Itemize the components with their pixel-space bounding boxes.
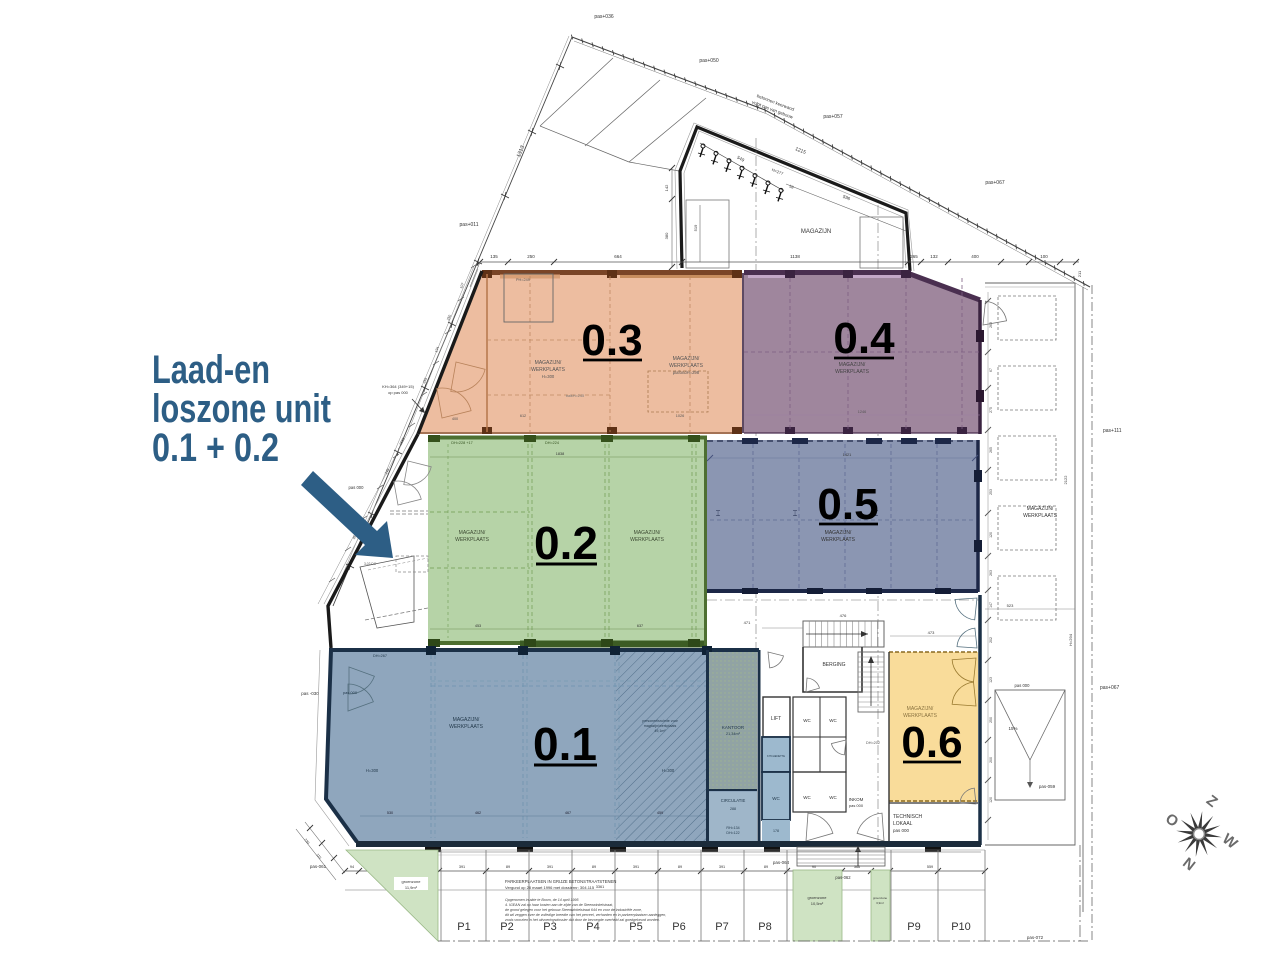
svg-text:211: 211	[1077, 270, 1082, 277]
svg-text:1246: 1246	[858, 410, 866, 414]
svg-text:135: 135	[490, 254, 498, 259]
svg-text:Vergund op 28 maart 1996 met d: Vergund op 28 maart 1996 met dossiernr: …	[505, 885, 595, 890]
svg-text:balkH=245: balkH=245	[566, 394, 584, 398]
svg-text:WERKPLAATS: WERKPLAATS	[630, 537, 664, 543]
svg-text:400: 400	[971, 254, 979, 259]
svg-text:P6: P6	[672, 921, 685, 933]
svg-text:DH=228 +17: DH=228 +17	[451, 441, 473, 445]
svg-text:MAGAZIJN/: MAGAZIJN/	[907, 706, 934, 712]
svg-text:pas 000: pas 000	[849, 803, 864, 808]
svg-text:pas+057: pas+057	[823, 114, 843, 120]
svg-text:11,9m²: 11,9m²	[405, 885, 418, 890]
svg-text:H=294: H=294	[1068, 633, 1073, 646]
svg-text:P3: P3	[543, 921, 556, 933]
svg-text:TECHNISCH: TECHNISCH	[893, 814, 923, 820]
svg-text:pas 000: pas 000	[349, 485, 365, 490]
svg-text:WC: WC	[829, 718, 837, 723]
svg-text:groenzone: groenzone	[402, 879, 422, 884]
svg-text:459: 459	[657, 811, 663, 815]
svg-text:magazijn/werkplaats: magazijn/werkplaats	[644, 724, 677, 728]
svg-text:⌶: ⌶	[793, 509, 798, 518]
svg-text:LOKAAL: LOKAAL	[893, 821, 913, 827]
svg-text:473: 473	[928, 630, 935, 635]
svg-text:pas+050: pas+050	[699, 58, 719, 64]
svg-text:RH=134: RH=134	[726, 826, 739, 830]
svg-text:CIRCULATIE: CIRCULATIE	[721, 798, 746, 803]
svg-text:pas-062: pas-062	[835, 875, 851, 880]
svg-text:89: 89	[506, 865, 510, 869]
svg-text:P8: P8	[758, 921, 771, 933]
svg-text:1138: 1138	[790, 254, 800, 259]
svg-text:265: 265	[910, 254, 918, 259]
svg-text:H=300: H=300	[366, 768, 379, 773]
svg-text:zoals voorzien in het uitvoeri: zoals voorzien in het uitvoeringsdossier…	[504, 918, 660, 922]
svg-text:WC: WC	[772, 796, 780, 801]
svg-text:pas+011: pas+011	[460, 222, 479, 228]
svg-text:3361: 3361	[596, 885, 604, 889]
svg-text:MAGAZIJN/: MAGAZIJN/	[459, 530, 486, 536]
svg-text:89: 89	[764, 865, 768, 869]
svg-text:MAGAZIJN: MAGAZIJN	[801, 229, 831, 235]
svg-text:pas-059: pas-059	[1039, 784, 1056, 789]
svg-text:P4: P4	[586, 921, 599, 933]
svg-text:DH=224: DH=224	[545, 441, 559, 445]
svg-text:0.3: 0.3	[581, 316, 642, 365]
svg-text:groenzone: groenzone	[808, 895, 828, 900]
svg-text:pas -030: pas -030	[301, 691, 319, 696]
svg-text:MAGAZIJN/: MAGAZIJN/	[634, 530, 661, 536]
svg-text:202: 202	[989, 637, 993, 643]
svg-text:2122: 2122	[1063, 475, 1068, 485]
svg-text:MAGAZIJN/: MAGAZIJN/	[453, 717, 480, 723]
svg-text:89: 89	[678, 865, 682, 869]
svg-text:4. IGEAN zal op haar kosten aa: 4. IGEAN zal op haar kosten aan de zijde…	[505, 903, 613, 907]
svg-text:664: 664	[614, 254, 622, 259]
svg-text:453: 453	[475, 624, 481, 628]
svg-text:personeelsruimte voor: personeelsruimte voor	[642, 719, 678, 723]
svg-text:H=300: H=300	[542, 374, 555, 379]
svg-text:WERKPLAATS: WERKPLAATS	[821, 537, 855, 543]
svg-text:KANTOOR: KANTOOR	[722, 725, 745, 730]
svg-text:pas-061: pas-061	[310, 864, 327, 869]
svg-text:10,5m²: 10,5m²	[811, 901, 824, 906]
svg-text:391: 391	[719, 865, 725, 869]
svg-text:132: 132	[930, 254, 938, 259]
svg-text:0.5: 0.5	[817, 480, 878, 529]
svg-text:PARKEERPLAATSEN IN GRIJZE BETO: PARKEERPLAATSEN IN GRIJZE BETONSTRAATSTE…	[505, 879, 616, 884]
svg-text:pas-072: pas-072	[1027, 935, 1044, 940]
svg-text:WERKPLAATS: WERKPLAATS	[455, 537, 489, 543]
svg-text:100: 100	[1040, 254, 1048, 259]
svg-text:3,9m²: 3,9m²	[876, 901, 884, 905]
svg-text:120: 120	[989, 532, 993, 538]
svg-text:pas 000: pas 000	[893, 828, 910, 833]
svg-text:1026: 1026	[676, 414, 684, 418]
svg-text:263: 263	[989, 570, 993, 576]
svg-text:KH=364 (349+15): KH=364 (349+15)	[382, 384, 414, 389]
svg-text:0.4: 0.4	[833, 314, 895, 363]
svg-text:15%: 15%	[1008, 726, 1017, 731]
svg-text:P10: P10	[951, 921, 971, 933]
svg-text:P9: P9	[907, 921, 920, 933]
svg-text:263: 263	[989, 322, 993, 328]
svg-text:BERGING: BERGING	[822, 662, 845, 668]
svg-text:391: 391	[547, 865, 553, 869]
svg-text:89: 89	[592, 865, 596, 869]
svg-text:391: 391	[459, 865, 465, 869]
svg-text:WERKPLAATS: WERKPLAATS	[531, 367, 565, 373]
svg-text:WERKPLAATS: WERKPLAATS	[669, 363, 703, 369]
svg-text:pas+036: pas+036	[594, 14, 614, 20]
svg-text:op pas 000: op pas 000	[388, 390, 409, 395]
svg-text:637: 637	[637, 624, 643, 628]
svg-text:MAGAZIJN/: MAGAZIJN/	[1027, 506, 1054, 512]
svg-text:pas 000: pas 000	[343, 690, 358, 695]
svg-text:94: 94	[350, 865, 354, 869]
svg-text:loszone unit: loszone unit	[152, 387, 331, 431]
svg-text:530: 530	[387, 811, 393, 815]
svg-text:groenzone: groenzone	[873, 896, 888, 900]
svg-text:P2: P2	[500, 921, 513, 933]
svg-text:265: 265	[989, 447, 993, 453]
svg-text:288: 288	[730, 807, 736, 811]
svg-text:391: 391	[633, 865, 639, 869]
svg-text:462: 462	[475, 811, 481, 815]
svg-text:Laad-en: Laad-en	[152, 348, 270, 392]
svg-text:pas+067: pas+067	[985, 180, 1005, 186]
svg-text:WERKPLAATS: WERKPLAATS	[1023, 513, 1057, 519]
svg-text:P7: P7	[715, 921, 728, 933]
svg-text:Opgenomen in akte te Boom, de: Opgenomen in akte te Boom, de 14 april 1…	[505, 898, 579, 902]
svg-text:H=300: H=300	[662, 768, 675, 773]
svg-text:476: 476	[840, 613, 847, 618]
svg-text:KITCHENETTE: KITCHENETTE	[767, 754, 785, 758]
svg-text:275: 275	[989, 407, 993, 413]
svg-text:WC: WC	[803, 718, 811, 723]
svg-text:467: 467	[565, 811, 571, 815]
svg-text:MAGAZIJN/: MAGAZIJN/	[673, 356, 700, 362]
svg-text:1421: 1421	[843, 453, 851, 457]
svg-text:DH=122: DH=122	[726, 831, 739, 835]
svg-text:21,34m²: 21,34m²	[726, 732, 741, 736]
svg-text:P5: P5	[629, 921, 642, 933]
svg-text:123: 123	[989, 677, 993, 683]
svg-text:366: 366	[854, 865, 860, 869]
svg-text:250: 250	[989, 717, 993, 723]
svg-text:WC: WC	[829, 795, 837, 800]
svg-text:P1: P1	[457, 921, 470, 933]
svg-text:147: 147	[989, 602, 993, 608]
svg-text:0.2: 0.2	[534, 517, 598, 569]
svg-text:380: 380	[664, 232, 669, 239]
svg-text:PH=249: PH=249	[516, 278, 530, 282]
svg-text:1838: 1838	[556, 452, 564, 456]
svg-text:250: 250	[527, 254, 535, 259]
svg-text:67: 67	[989, 368, 993, 372]
svg-text:MAGAZIJN/: MAGAZIJN/	[825, 530, 852, 536]
svg-text:pas+111: pas+111	[1103, 428, 1122, 434]
svg-text:LIFT: LIFT	[771, 716, 781, 722]
svg-text:49,1m²: 49,1m²	[654, 729, 666, 733]
svg-text:559: 559	[927, 865, 933, 869]
svg-text:142: 142	[664, 184, 669, 191]
svg-text:DH=267: DH=267	[373, 654, 387, 658]
svg-text:pas+067: pas+067	[1100, 685, 1120, 691]
svg-text:WERKPLAATS: WERKPLAATS	[449, 724, 483, 730]
svg-text:253: 253	[989, 489, 993, 495]
svg-text:WC: WC	[803, 795, 811, 800]
svg-text:612: 612	[520, 414, 526, 418]
svg-text:⌶: ⌶	[716, 509, 721, 518]
svg-text:WERKPLAATS: WERKPLAATS	[835, 369, 869, 375]
svg-text:MAGAZIJN/: MAGAZIJN/	[535, 360, 562, 366]
svg-text:178: 178	[773, 829, 779, 833]
svg-text:200: 200	[989, 757, 993, 763]
svg-text:plafondH=298: plafondH=298	[673, 370, 700, 375]
svg-text:INKOM: INKOM	[849, 797, 864, 802]
svg-text:523: 523	[1007, 603, 1014, 608]
svg-text:471: 471	[744, 620, 751, 625]
svg-text:pas 000: pas 000	[1015, 683, 1031, 688]
svg-text:0.6: 0.6	[901, 718, 962, 767]
svg-text:0.1: 0.1	[533, 718, 597, 770]
svg-text:400: 400	[452, 417, 458, 421]
svg-text:519: 519	[693, 224, 698, 231]
svg-text:dit wil zeggen over de volledi: dit wil zeggen over de volledige breedte…	[505, 913, 666, 917]
svg-text:DH=202: DH=202	[866, 741, 880, 745]
svg-text:90: 90	[812, 865, 816, 869]
svg-text:de grond gelegen voor het gebo: de grond gelegen voor het gebouw Steenwi…	[505, 908, 642, 912]
svg-text:3-02-DC: 3-02-DC	[364, 562, 377, 566]
svg-text:120: 120	[989, 797, 993, 803]
svg-text:0.1 + 0.2: 0.1 + 0.2	[152, 426, 279, 470]
